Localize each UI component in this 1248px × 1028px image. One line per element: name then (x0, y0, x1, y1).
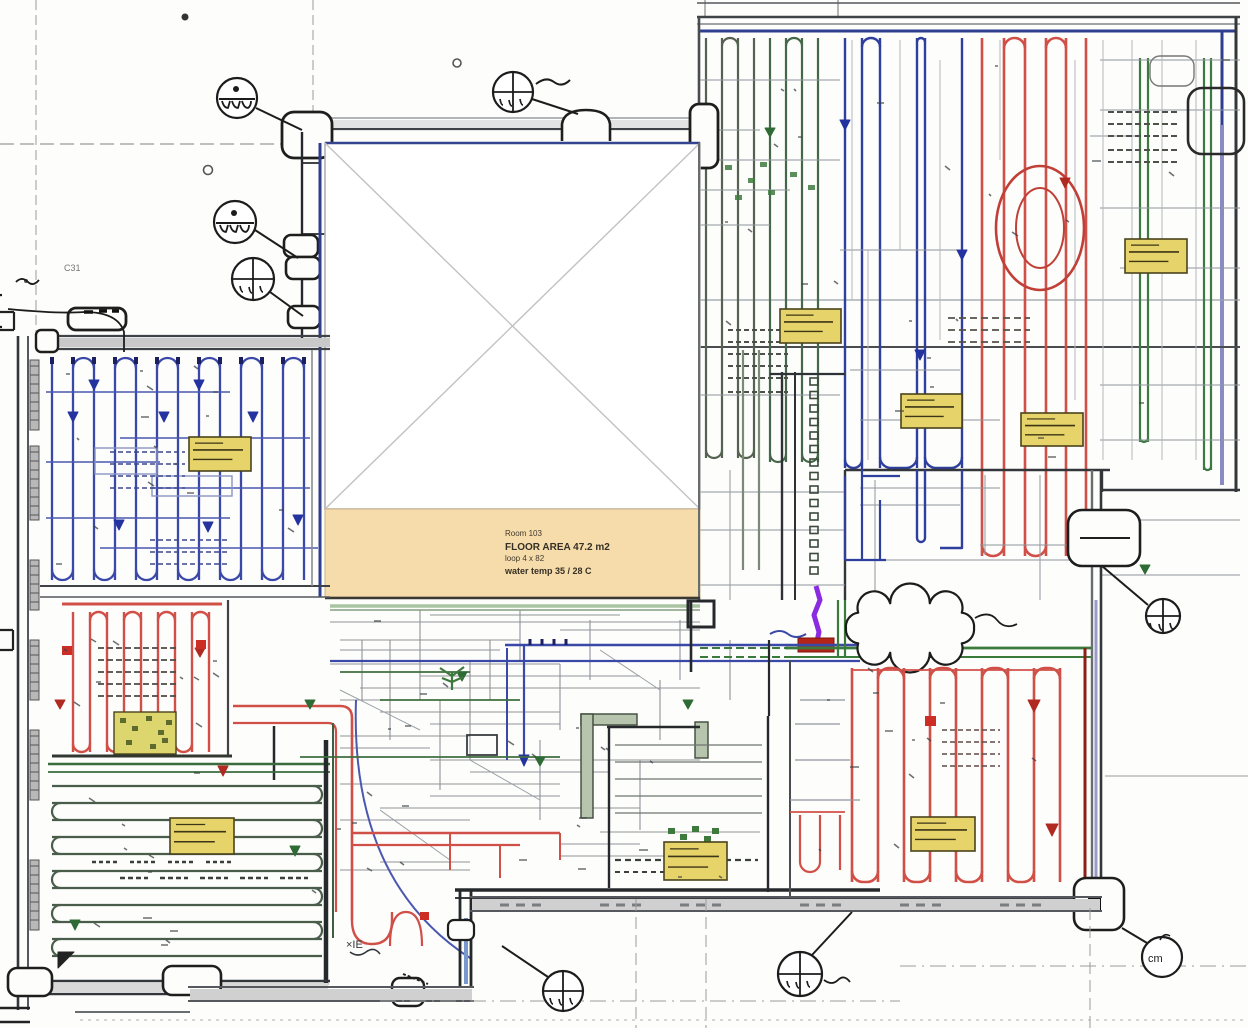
svg-text:cm: cm (1148, 953, 1163, 965)
svg-text:C31: C31 (64, 263, 81, 273)
svg-text:Room 103: Room 103 (505, 529, 542, 538)
svg-text:loop 4 x 82: loop 4 x 82 (505, 554, 545, 563)
svg-text:water temp 35 / 28 C: water temp 35 / 28 C (504, 566, 592, 576)
svg-text:×IE: ×IE (346, 939, 363, 951)
svg-text:FLOOR AREA 47.2 m2: FLOOR AREA 47.2 m2 (505, 542, 610, 553)
